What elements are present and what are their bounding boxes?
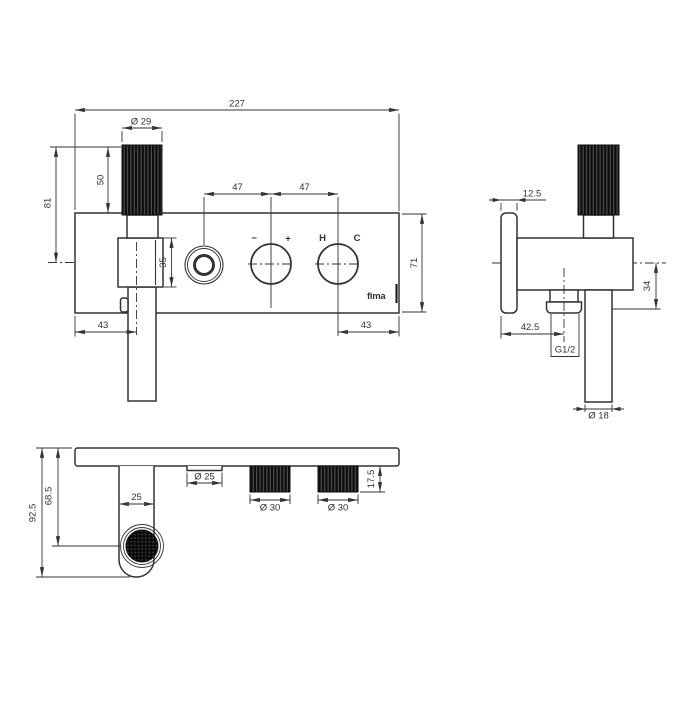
- dim-text: 12.5: [523, 189, 542, 200]
- dim-mixer-knob-diameter: Ø 30: [250, 495, 290, 514]
- dim-text: 47: [232, 182, 243, 193]
- wall-plate-side: [501, 213, 517, 313]
- dim-diverter-diameter: Ø 25: [187, 472, 222, 488]
- spout-nub: [121, 298, 129, 312]
- temp-knob-neck-front: [127, 215, 158, 238]
- side-view: 12.5 34 42.5 G1/2 Ø 18: [489, 145, 666, 422]
- bottom-view: 92.5 68.5 25 Ø 25 Ø 30: [28, 448, 400, 577]
- dim-text: Ø 25: [194, 472, 215, 483]
- dim-text: 34: [642, 281, 653, 292]
- dim-text: 81: [43, 198, 54, 209]
- spout-pipe-side: [585, 290, 612, 402]
- dim-plate-to-outlet: 42.5: [501, 316, 564, 339]
- dim-text: 47: [299, 182, 310, 193]
- dim-text: 43: [361, 320, 372, 331]
- plus-label: +: [285, 234, 291, 245]
- dim-text: 42.5: [521, 322, 540, 333]
- dim-temp-control-offset: 43: [338, 316, 399, 337]
- dim-text: 68.5: [44, 487, 55, 506]
- temp-knob-bottom: [318, 466, 358, 492]
- dim-text: G1/2: [555, 345, 576, 356]
- dim-control-spacing: 47 47: [204, 182, 338, 194]
- hot-label: H: [319, 233, 326, 244]
- dim-plate-height: 71: [402, 214, 427, 312]
- dim-overall-depth: 92.5: [28, 448, 131, 577]
- spout-pipe-front: [128, 287, 156, 401]
- dim-pipe-diameter: Ø 18: [573, 405, 624, 422]
- dim-temp-knob-diameter: Ø 30: [318, 495, 358, 514]
- dim-knob-height: 50: [96, 147, 109, 213]
- dim-text: 43: [98, 320, 109, 331]
- mixer-knob-bottom: [250, 466, 290, 492]
- dim-text: 92.5: [28, 504, 39, 523]
- dim-text: 25: [131, 492, 142, 503]
- dim-outlet-thread: G1/2: [551, 314, 579, 357]
- dim-text: 50: [96, 175, 107, 186]
- diverter-button: [195, 256, 214, 275]
- dim-knob-to-axis: 81: [43, 147, 57, 263]
- dim-text: 35: [158, 257, 169, 268]
- brand-logo: fima: [367, 291, 386, 302]
- dim-text: 227: [229, 99, 245, 110]
- dim-text: 71: [409, 258, 420, 269]
- cold-label: C: [354, 233, 361, 244]
- front-view: − + H C fima 227 Ø 29 50 81: [43, 99, 427, 402]
- dim-knob-height-bottom: 17.5: [360, 466, 385, 492]
- dim-text: 17.5: [366, 470, 377, 489]
- dim-text: Ø 30: [328, 503, 349, 514]
- mixer-body-side: [517, 238, 633, 290]
- diverter-boss-bottom: [187, 466, 222, 471]
- dim-text: Ø 18: [588, 411, 609, 422]
- minus-label: −: [251, 233, 257, 244]
- spout-body-front: [118, 238, 163, 287]
- dim-plate-thickness: 12.5: [489, 189, 546, 211]
- dim-text: Ø 30: [260, 503, 281, 514]
- technical-drawing: − + H C fima 227 Ø 29 50 81: [0, 0, 700, 700]
- drawing-sheet: − + H C fima 227 Ø 29 50 81: [0, 0, 700, 700]
- aerator-mesh: [126, 530, 158, 562]
- temp-knob-front: [122, 145, 162, 215]
- temp-knob-neck-side: [584, 215, 614, 238]
- mixer-plate-bottom: [75, 448, 399, 466]
- temp-knob-side: [578, 145, 619, 215]
- dim-knob-diameter: Ø 29: [122, 117, 162, 143]
- dim-text: Ø 29: [131, 117, 152, 128]
